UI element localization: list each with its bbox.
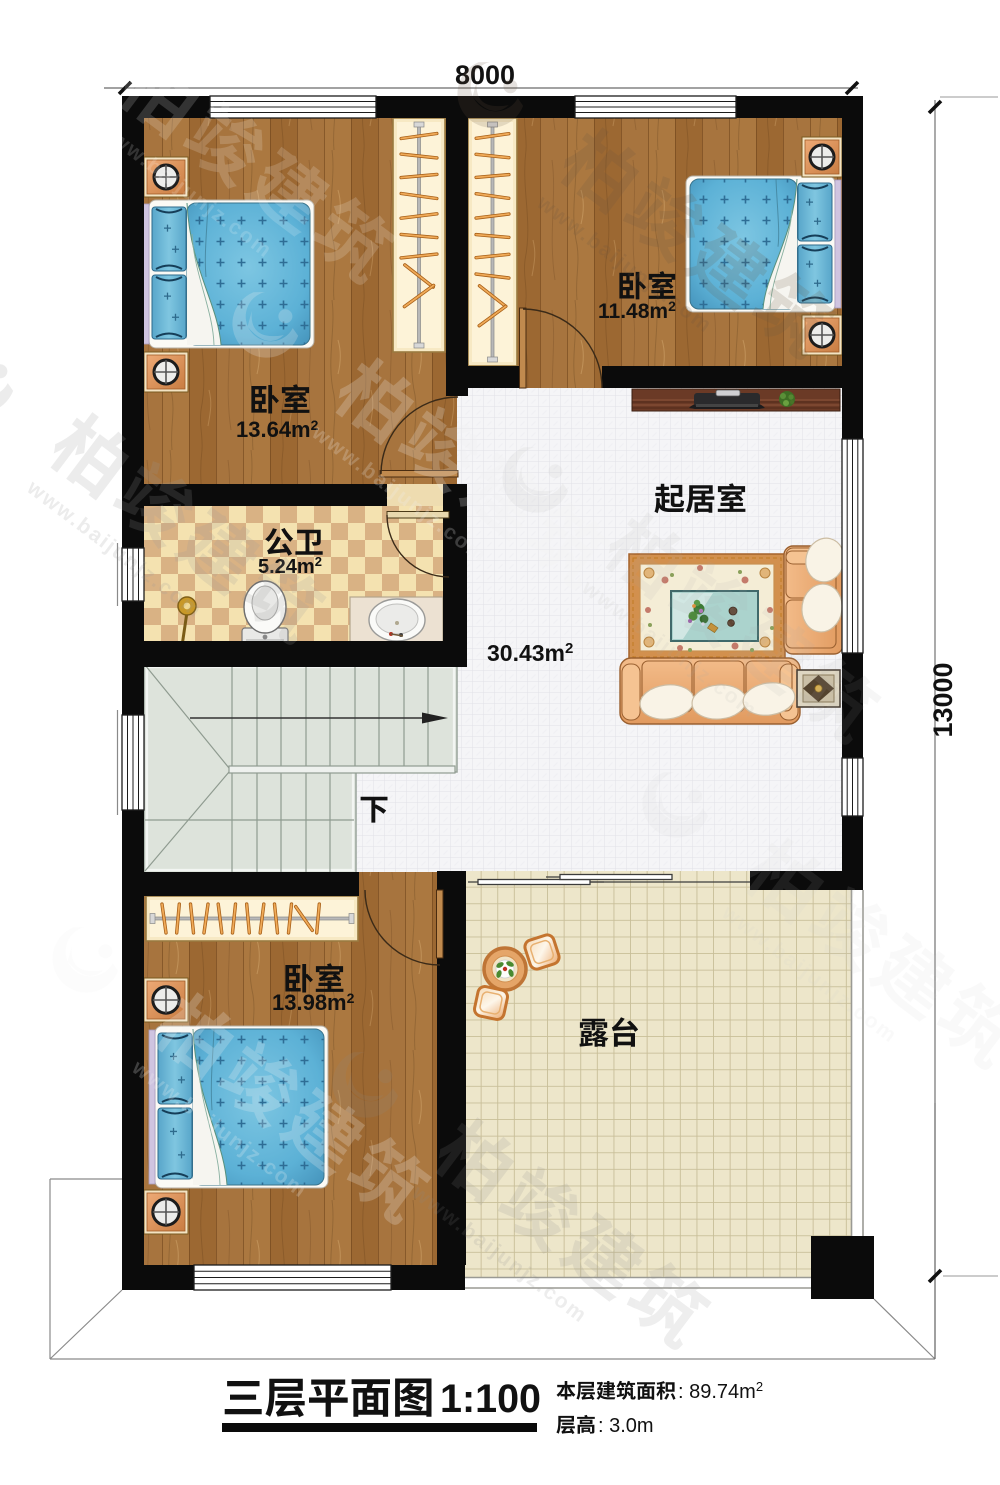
svg-text:13000: 13000 [928,662,958,737]
svg-text:13.64m2: 13.64m2 [236,417,319,442]
svg-text:1:100: 1:100 [440,1377,541,1421]
svg-text:: 3.0m: : 3.0m [598,1415,654,1437]
svg-text:13.98m2: 13.98m2 [272,990,355,1015]
svg-text:30.43m2: 30.43m2 [487,640,573,666]
svg-text:: 89.74m2: : 89.74m2 [678,1379,763,1403]
